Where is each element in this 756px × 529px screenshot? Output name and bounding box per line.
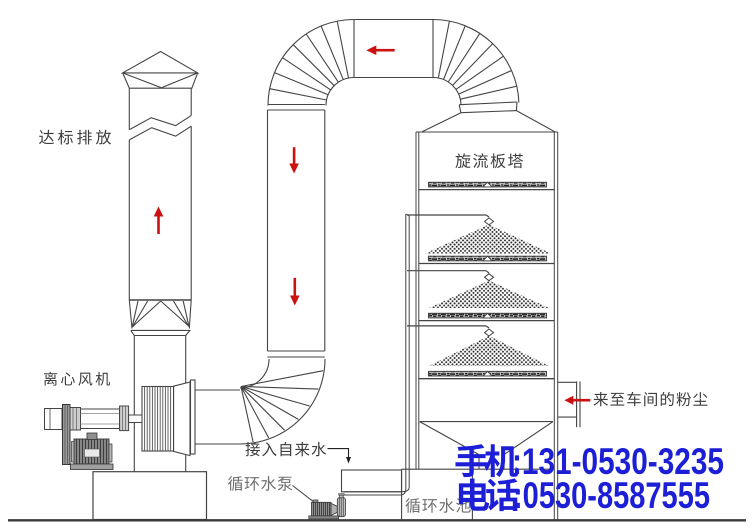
svg-text::0530-8587555: :0530-8587555 bbox=[513, 475, 710, 516]
